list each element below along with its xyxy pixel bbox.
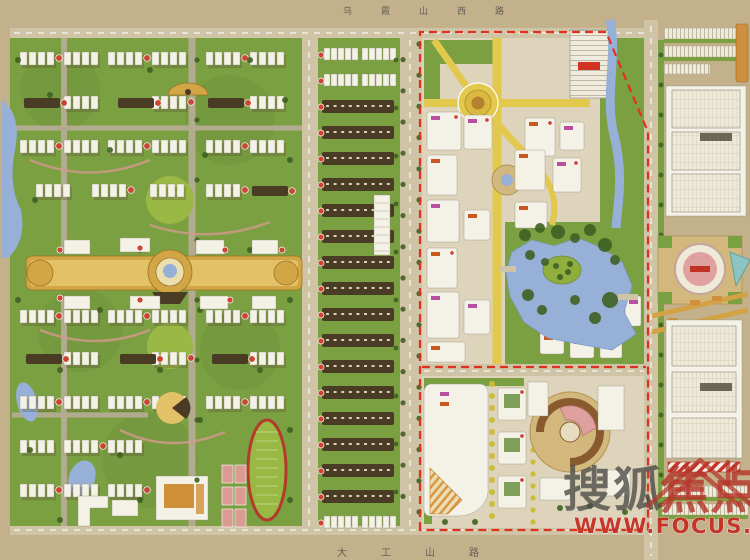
watermark-url: WWW.FOCUS.CN	[574, 514, 750, 538]
watermark-brand-dark: 搜狐	[563, 462, 663, 518]
market-district-east	[652, 24, 750, 520]
master-plan-map: 乌霞山西路 大工山路 搜狐 焦点 WWW.FOCUS.CN	[0, 0, 750, 560]
bottom-road-label: 大工山路	[337, 546, 513, 559]
rowhouse-district	[318, 38, 400, 528]
sohu-focus-watermark: 搜狐 焦点 WWW.FOCUS.CN	[563, 460, 750, 538]
top-road-label: 乌霞山西路	[343, 5, 533, 17]
master-plan-screenshot: 乌霞山西路 大工山路 搜狐 焦点 WWW.FOCUS.CN	[0, 0, 750, 560]
commercial-district-north	[422, 20, 644, 364]
